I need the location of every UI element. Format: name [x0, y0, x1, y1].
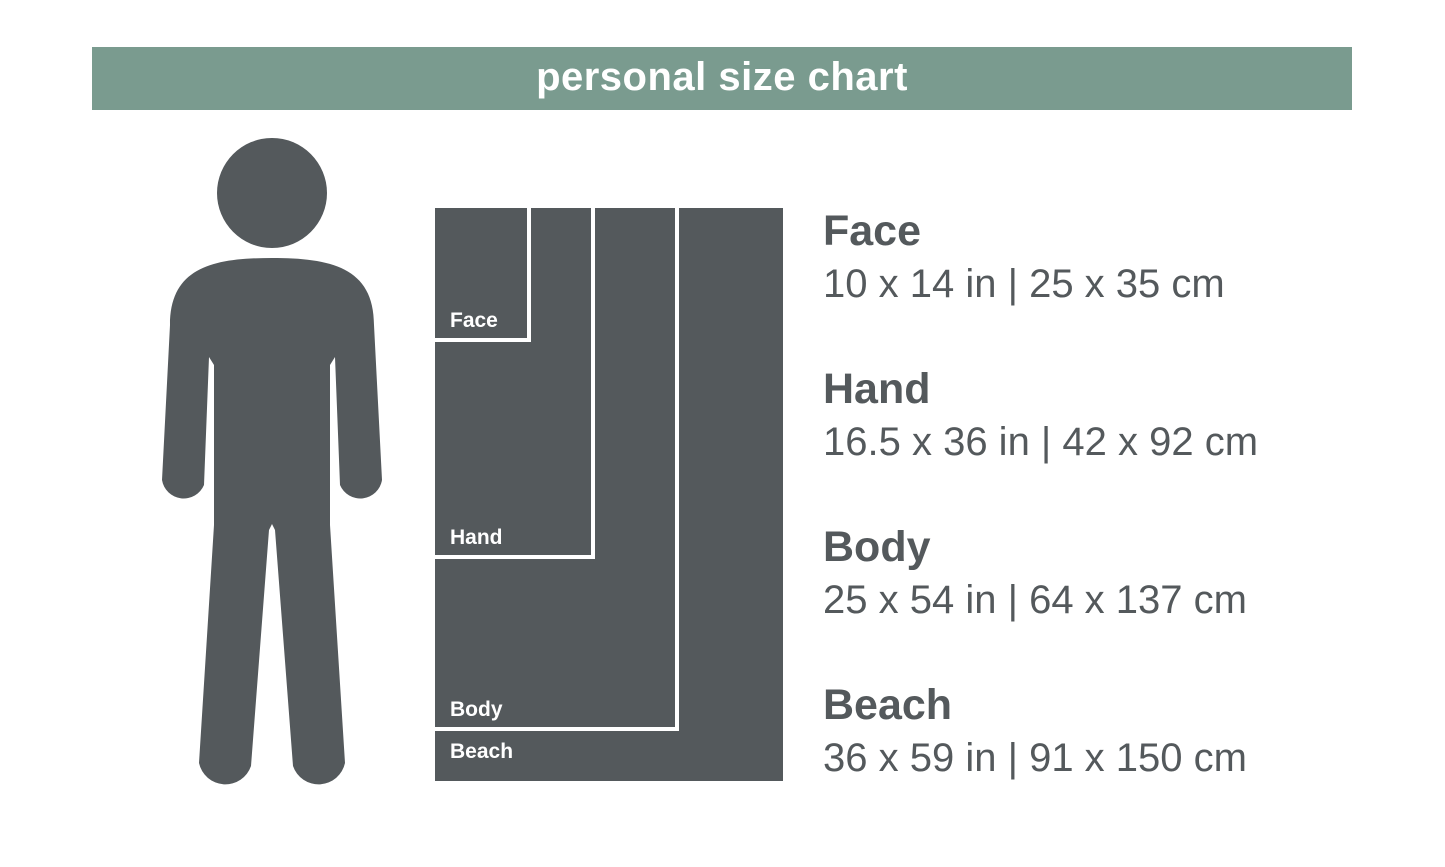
size-chart-infographic: personal size chart FaceHandBodyBeach Fa…: [0, 0, 1445, 867]
legend-item-body: Body25 x 54 in | 64 x 137 cm: [823, 524, 1247, 624]
person-silhouette-icon: [152, 135, 392, 795]
legend-name-hand: Hand: [823, 366, 1258, 413]
legend-name-beach: Beach: [823, 682, 1247, 729]
legend-dimensions-beach: 36 x 59 in | 91 x 150 cm: [823, 734, 1247, 782]
legend-item-beach: Beach36 x 59 in | 91 x 150 cm: [823, 682, 1247, 782]
legend-item-hand: Hand16.5 x 36 in | 42 x 92 cm: [823, 366, 1258, 466]
size-rect-label-body: Body: [450, 699, 503, 720]
person-head: [217, 138, 327, 248]
legend-name-face: Face: [823, 208, 1225, 255]
page-title: personal size chart: [536, 57, 908, 101]
size-diagram: FaceHandBodyBeach: [435, 208, 783, 781]
person-body: [162, 258, 382, 784]
size-rect-body: [435, 208, 679, 731]
legend-dimensions-face: 10 x 14 in | 25 x 35 cm: [823, 260, 1225, 308]
legend-name-body: Body: [823, 524, 1247, 571]
header-bar: personal size chart: [92, 47, 1352, 110]
legend-item-face: Face10 x 14 in | 25 x 35 cm: [823, 208, 1225, 308]
size-rect-label-beach: Beach: [450, 741, 513, 762]
legend-dimensions-hand: 16.5 x 36 in | 42 x 92 cm: [823, 418, 1258, 466]
legend-dimensions-body: 25 x 54 in | 64 x 137 cm: [823, 576, 1247, 624]
